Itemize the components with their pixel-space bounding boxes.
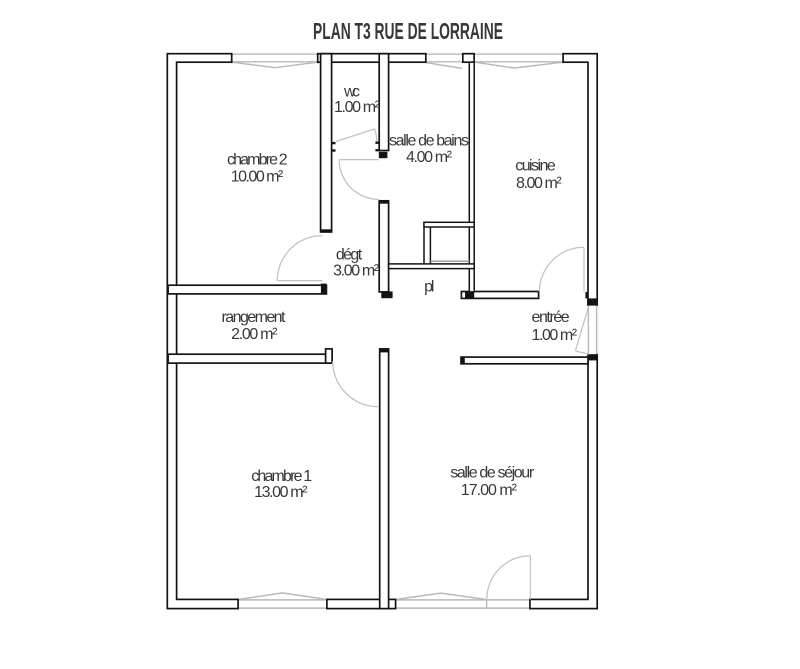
svg-text:3.00 m²: 3.00 m² (333, 263, 380, 280)
svg-text:PLAN T3 RUE DE LORRAINE: PLAN T3 RUE DE LORRAINE (313, 18, 503, 44)
svg-text:13.00 m²: 13.00 m² (254, 484, 308, 501)
svg-text:2.00 m²: 2.00 m² (231, 326, 278, 343)
svg-text:10.00 m²: 10.00 m² (231, 168, 284, 185)
svg-text:chambre 1: chambre 1 (251, 468, 312, 485)
svg-text:rangement: rangement (222, 309, 286, 326)
svg-text:1.00 m²: 1.00 m² (532, 327, 578, 344)
svg-text:pl: pl (424, 278, 434, 295)
svg-text:17.00 m²: 17.00 m² (461, 482, 518, 499)
svg-text:entrée: entrée (532, 309, 570, 326)
svg-text:4.00 m²: 4.00 m² (406, 149, 453, 166)
svg-text:8.00 m²: 8.00 m² (516, 175, 562, 192)
svg-text:dégt: dégt (336, 247, 363, 264)
svg-text:1.00 m²: 1.00 m² (334, 99, 381, 116)
svg-text:salle de bains: salle de bains (389, 133, 469, 150)
svg-text:chambre 2: chambre 2 (227, 152, 288, 169)
svg-text:salle de séjour: salle de séjour (450, 464, 535, 481)
svg-text:cuisine: cuisine (515, 158, 556, 175)
svg-text:wc: wc (343, 83, 360, 100)
